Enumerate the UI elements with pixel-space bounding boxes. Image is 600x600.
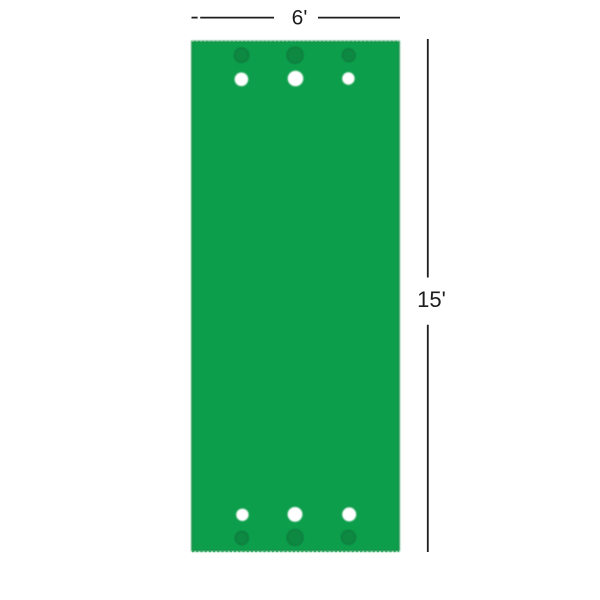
svg-text:15': 15' — [417, 287, 446, 312]
svg-text:6': 6' — [292, 7, 308, 30]
